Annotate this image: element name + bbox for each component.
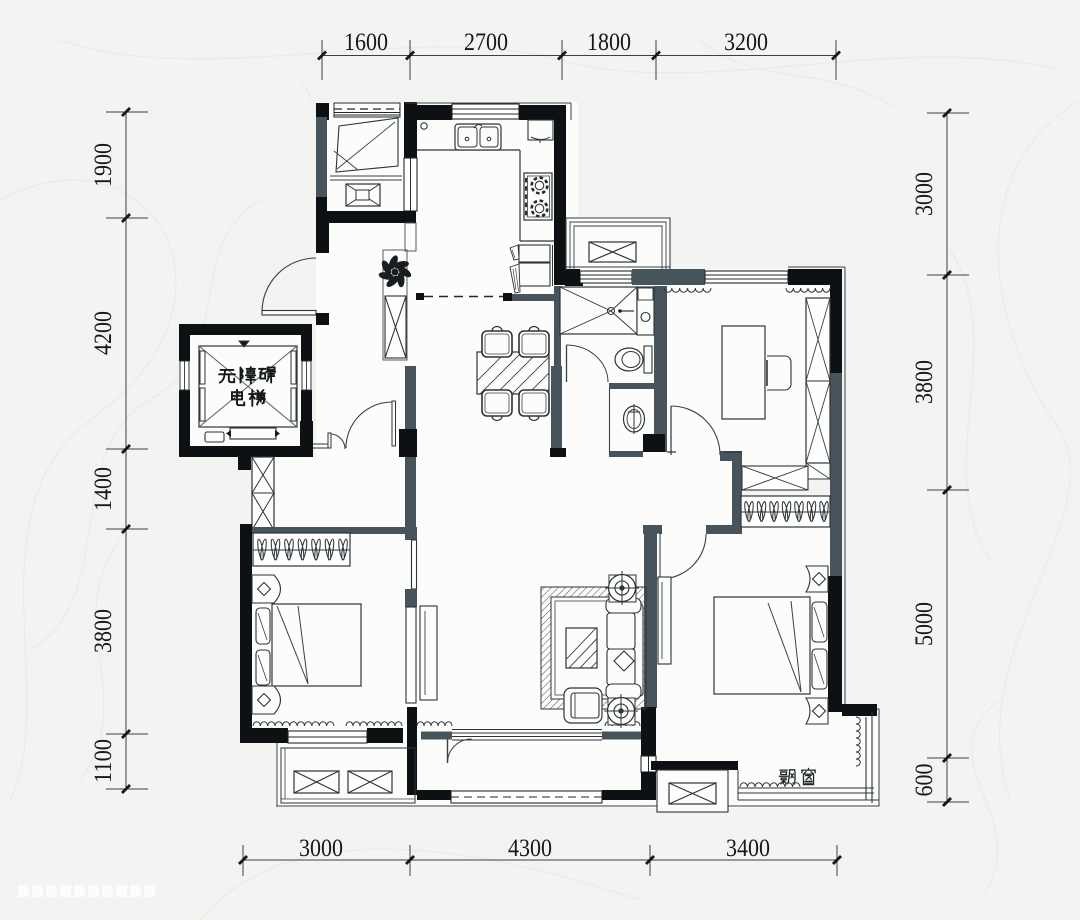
svg-text:3000: 3000 xyxy=(911,172,938,216)
svg-text:1600: 1600 xyxy=(344,29,388,56)
svg-text:4300: 4300 xyxy=(508,835,552,862)
svg-text:2700: 2700 xyxy=(464,29,508,56)
svg-text:1900: 1900 xyxy=(90,143,117,187)
svg-text:600: 600 xyxy=(911,764,938,797)
svg-text:4200: 4200 xyxy=(90,311,117,355)
svg-text:3400: 3400 xyxy=(726,835,770,862)
svg-text:3800: 3800 xyxy=(911,360,938,404)
svg-text:3800: 3800 xyxy=(90,609,117,653)
svg-text:1400: 1400 xyxy=(90,467,117,511)
svg-text:1100: 1100 xyxy=(90,739,117,783)
svg-text:5000: 5000 xyxy=(911,602,938,646)
svg-text:3000: 3000 xyxy=(299,835,343,862)
svg-text:3200: 3200 xyxy=(724,29,768,56)
svg-text:1800: 1800 xyxy=(587,29,631,56)
